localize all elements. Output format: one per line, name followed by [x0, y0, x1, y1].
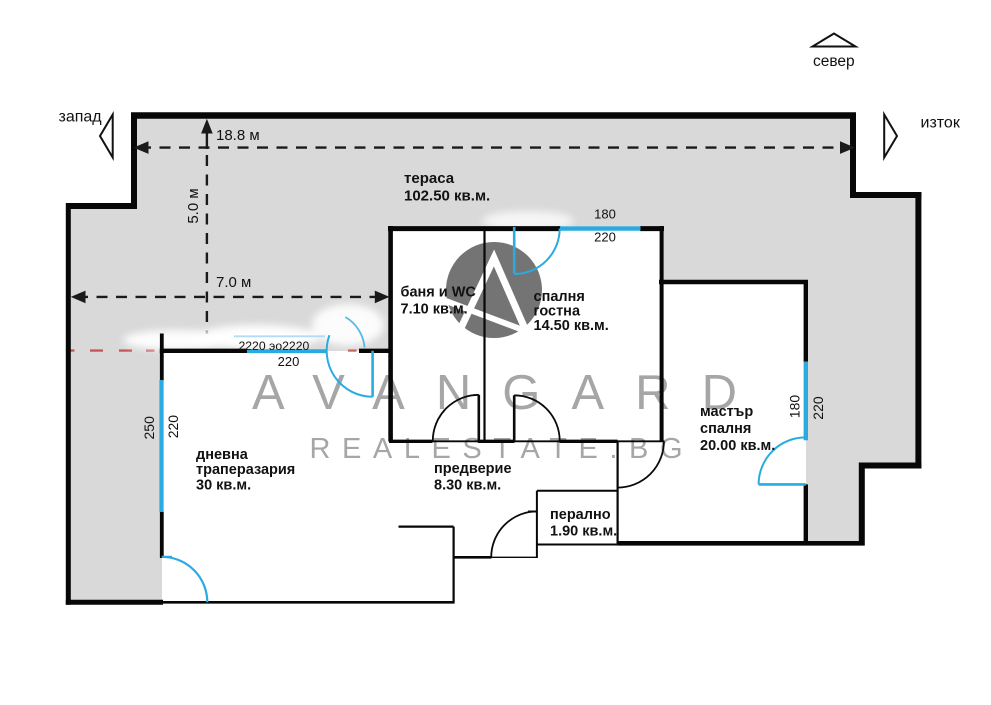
svg-text:102.50 кв.м.: 102.50 кв.м.: [404, 188, 490, 205]
svg-text:20.00 кв.м.: 20.00 кв.м.: [700, 438, 775, 454]
svg-text:7.10 кв.м.: 7.10 кв.м.: [401, 302, 468, 318]
svg-text:изток: изток: [921, 115, 961, 132]
svg-text:180: 180: [787, 395, 803, 419]
svg-text:8.30 кв.м.: 8.30 кв.м.: [434, 478, 501, 494]
svg-text:220: 220: [165, 415, 181, 439]
svg-text:предверие: предверие: [434, 461, 512, 477]
svg-text:мастър: мастър: [700, 404, 753, 420]
svg-text:250: 250: [141, 416, 157, 440]
svg-text:спалня: спалня: [700, 421, 751, 437]
svg-text:запад: запад: [59, 109, 103, 126]
svg-text:180: 180: [594, 207, 616, 222]
svg-text:220: 220: [278, 354, 300, 369]
svg-text:2220 эо2220: 2220 эо2220: [239, 339, 310, 353]
svg-text:тераса: тераса: [404, 170, 455, 187]
svg-text:30 кв.м.: 30 кв.м.: [196, 478, 251, 494]
svg-text:7.0 м: 7.0 м: [216, 274, 251, 291]
svg-text:5.0 м: 5.0 м: [185, 188, 202, 223]
svg-text:18.8 м: 18.8 м: [216, 127, 260, 144]
svg-text:перално: перално: [550, 507, 611, 523]
svg-text:север: север: [813, 53, 855, 70]
svg-text:220: 220: [810, 396, 826, 420]
svg-text:дневна: дневна: [196, 447, 249, 463]
svg-text:1.90 кв.м.: 1.90 кв.м.: [550, 524, 617, 540]
svg-text:баня и WC: баня и WC: [401, 285, 477, 301]
svg-text:траперазария: траперазария: [196, 462, 295, 478]
svg-text:14.50 кв.м.: 14.50 кв.м.: [534, 318, 609, 334]
svg-text:220: 220: [594, 230, 616, 245]
